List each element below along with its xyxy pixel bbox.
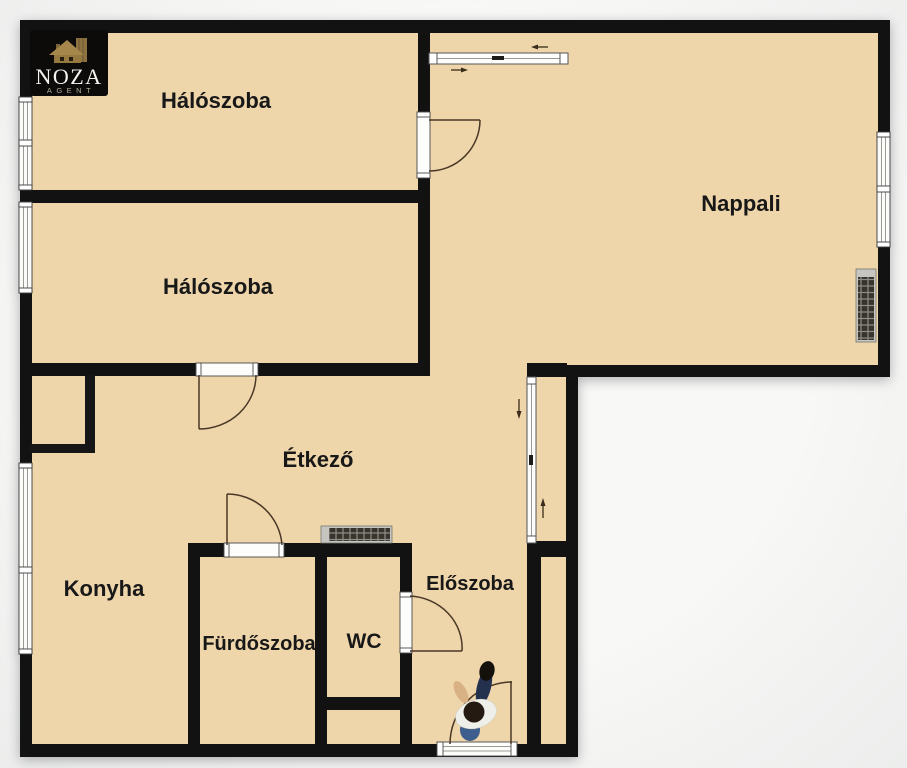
person-head — [464, 702, 485, 723]
label-bedroom1: Hálószoba — [161, 88, 272, 113]
wall-wc-bottom — [327, 697, 400, 710]
label-kitchen: Konyha — [64, 576, 145, 601]
window-living — [877, 132, 890, 247]
wall-shaft-horizontal — [30, 444, 90, 453]
window-bedroom1 — [19, 97, 32, 190]
wall-shaft-vertical — [85, 375, 95, 453]
logo-subtitle-text: AGENT — [47, 86, 95, 95]
wall-sanitary-top — [188, 543, 412, 557]
wall-closet-top-stub — [527, 363, 567, 377]
wall-top — [20, 20, 890, 33]
radiator-living — [856, 269, 876, 342]
window-bedroom2 — [19, 202, 32, 293]
label-living: Nappali — [701, 191, 780, 216]
wall-right-lower — [566, 365, 578, 757]
label-dining: Étkező — [283, 447, 354, 472]
label-wc: WC — [347, 630, 382, 653]
window-kitchen — [19, 463, 32, 654]
wall-hall-right — [527, 541, 541, 757]
label-bathroom: Fürdőszoba — [202, 633, 316, 655]
agency-logo: NOZA AGENT — [30, 30, 108, 96]
floorplan-image: NOZA AGENT Hálószoba Hálószoba Nappali É… — [0, 0, 907, 768]
floorplan-canvas: NOZA AGENT Hálószoba Hálószoba Nappali É… — [0, 0, 907, 768]
radiator-dining — [321, 526, 392, 543]
apartment-floor — [20, 20, 890, 757]
wall-bedroom-divider — [20, 190, 430, 203]
label-hall: Előszoba — [426, 573, 515, 595]
wall-kitchen-bath-divider — [188, 543, 200, 757]
wall-bath-wc-divider — [315, 543, 327, 757]
wall-living-bottom — [565, 365, 890, 377]
wall-bedrooms-right — [418, 20, 430, 375]
label-bedroom2: Hálószoba — [163, 274, 274, 299]
